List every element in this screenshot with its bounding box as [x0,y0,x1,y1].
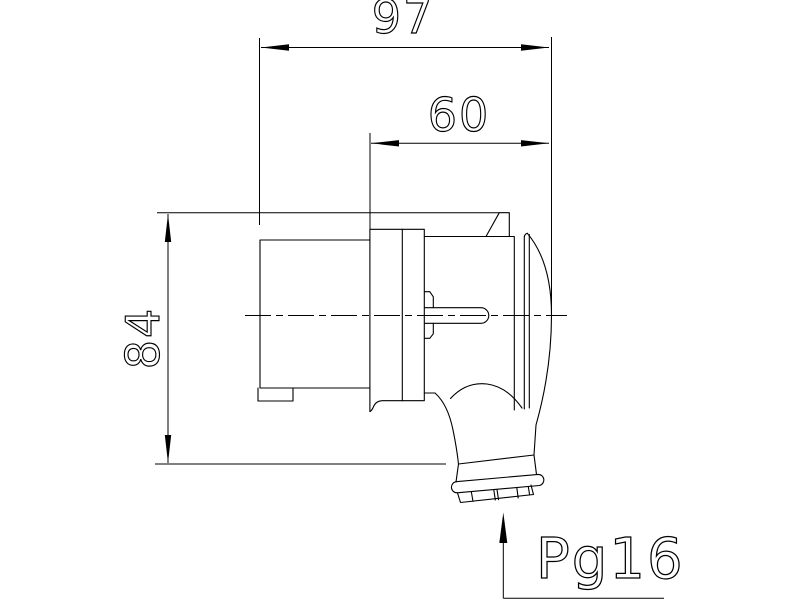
gland-top-joint [459,455,535,464]
gland-lock-ring [451,474,543,492]
back-shell-outline [260,240,370,388]
front-collar-lines [514,235,529,411]
dimension-overall-height: 84 [116,213,499,464]
dimension-overall-length: 97 [260,0,552,312]
connector-body [424,213,551,455]
arrowhead-left [371,140,399,146]
dimension-overall-height-label: 84 [116,307,170,370]
flange-outline [370,229,424,411]
elbow-left-outline [435,393,459,464]
dimension-front-length-label: 60 [428,88,491,142]
dimension-overall-length-label: 97 [372,0,435,44]
technical-drawing-page: 97 60 84 Pg16 [0,0,800,600]
connector-side-view [245,213,567,503]
arrowhead-bottom [165,435,171,463]
cable-gland [451,455,543,503]
arrowhead-left [261,44,289,51]
dimension-front-length: 60 [370,88,549,229]
front-face-bulge [527,233,551,455]
arrowhead-right [521,44,549,51]
arrowhead-top [165,214,171,242]
gland-leader: Pg16 [499,513,684,599]
arrowhead-right [521,140,549,146]
latch-tab [486,213,509,237]
back-shell-foot [258,388,293,401]
elbow-arch [451,384,523,408]
cable-gland-label: Pg16 [536,527,685,592]
technical-drawing-canvas: 97 60 84 Pg16 [0,0,800,600]
back-shell [258,240,370,401]
elbow-cable-outlet [435,384,522,464]
leader-arrowhead [499,513,507,544]
collar-top-arc [524,233,527,237]
mounting-flange [370,229,424,411]
